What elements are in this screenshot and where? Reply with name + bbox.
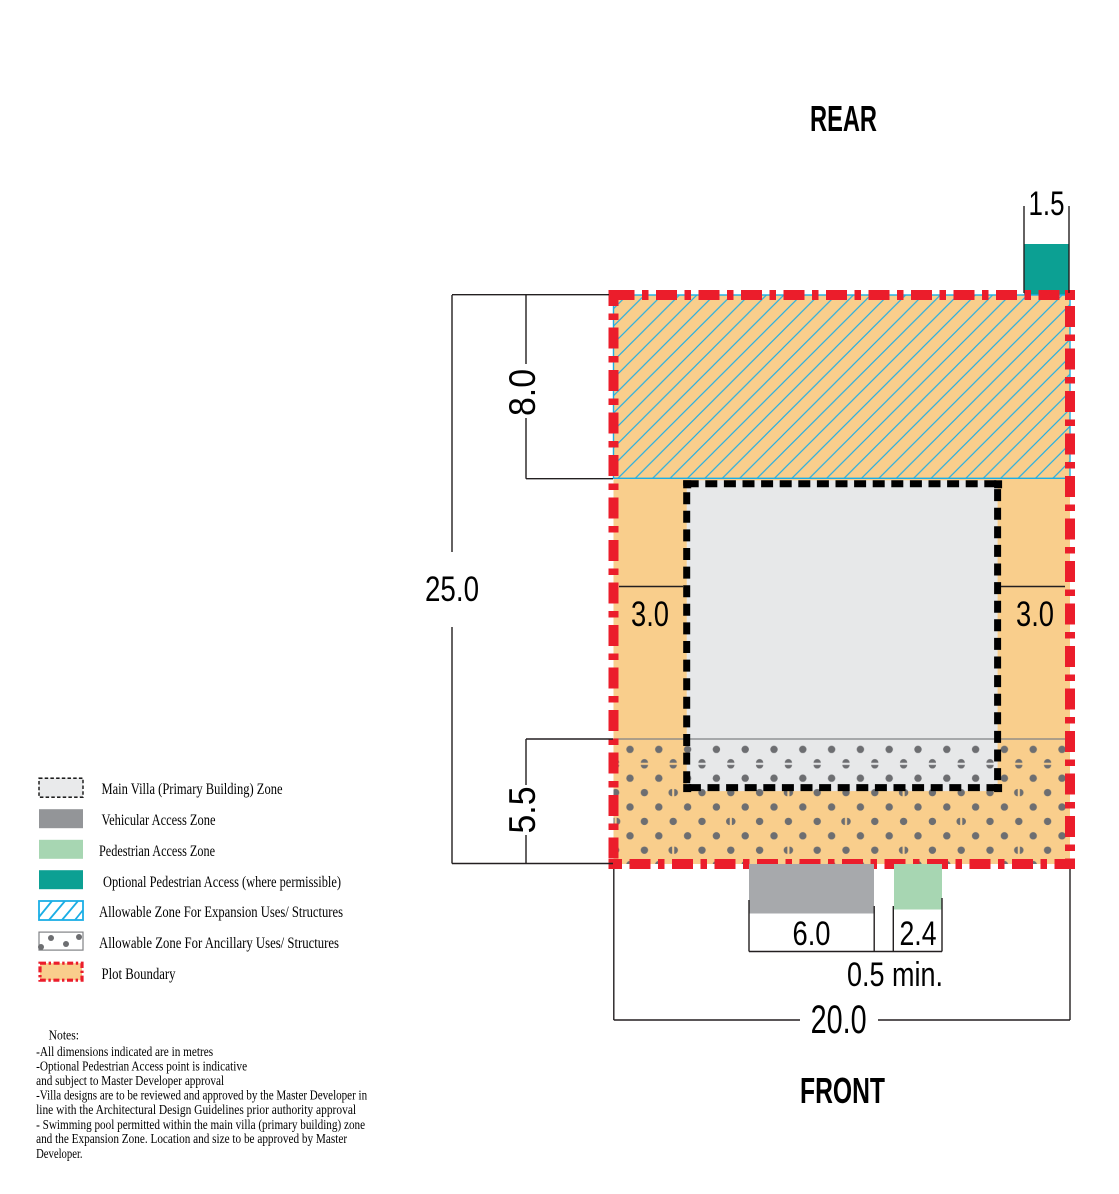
svg-text:1.5: 1.5 (1029, 185, 1065, 223)
svg-text:3.0: 3.0 (1016, 595, 1054, 634)
svg-text:-Optional Pedestrian Access po: -Optional Pedestrian Access point is ind… (36, 1059, 247, 1074)
svg-text:REAR: REAR (810, 98, 877, 139)
svg-text:0.5 min.: 0.5 min. (847, 956, 943, 994)
svg-text:20.0: 20.0 (811, 998, 867, 1042)
svg-text:Allowable Zone For Ancillary U: Allowable Zone For Ancillary Uses/ Struc… (99, 935, 339, 952)
svg-text:25.0: 25.0 (425, 570, 479, 609)
svg-text:3.0: 3.0 (631, 595, 669, 634)
svg-text:Developer.: Developer. (36, 1146, 83, 1161)
svg-text:2.4: 2.4 (900, 915, 937, 953)
svg-text:8.0: 8.0 (502, 369, 543, 416)
svg-text:and subject to Master Develope: and subject to Master Developer approval (36, 1073, 224, 1088)
svg-text:-Villa designs are to be revie: -Villa designs are to be reviewed and ap… (36, 1088, 367, 1103)
svg-text:Pedestrian Access Zone: Pedestrian Access Zone (99, 843, 215, 860)
svg-text:Plot Boundary: Plot Boundary (102, 966, 176, 983)
svg-text:Optional Pedestrian Access (wh: Optional Pedestrian Access (where permis… (103, 874, 341, 891)
svg-text:and the Expansion Zone. Locati: and the Expansion Zone. Location and siz… (36, 1131, 347, 1146)
svg-text:Vehicular Access Zone: Vehicular Access Zone (102, 812, 216, 829)
svg-text:line with the Architectural De: line with the Architectural Design Guide… (36, 1102, 356, 1117)
svg-text:- Swimming pool permitted with: - Swimming pool permitted within the mai… (36, 1117, 365, 1132)
svg-text:5.5: 5.5 (502, 787, 543, 834)
svg-text:-All dimensions indicated are: -All dimensions indicated are in metres (36, 1044, 213, 1059)
svg-text:Notes:: Notes: (49, 1028, 79, 1043)
svg-text:6.0: 6.0 (793, 915, 831, 953)
svg-text:Main Villa (Primary Building): Main Villa (Primary Building) Zone (102, 781, 283, 798)
svg-text:FRONT: FRONT (800, 1070, 885, 1111)
svg-text:Allowable Zone For Expansion U: Allowable Zone For Expansion Uses/ Struc… (99, 904, 343, 921)
